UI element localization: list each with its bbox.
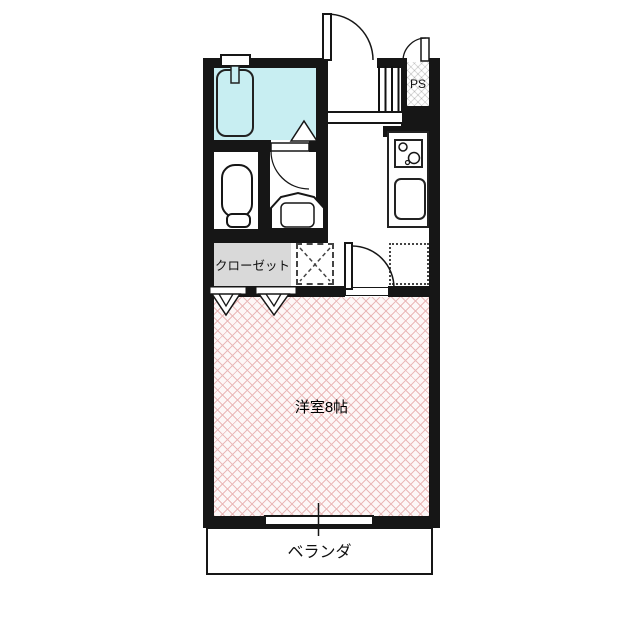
balcony-label: ベランダ bbox=[206, 533, 433, 567]
bathtub-tap-icon bbox=[231, 66, 239, 83]
stove-burners-icon bbox=[399, 143, 420, 165]
washing-machine-x-icon bbox=[300, 248, 330, 281]
washroom-door-icon bbox=[271, 143, 309, 189]
bathroom-door-icon bbox=[291, 121, 317, 141]
closet-folding-doors-icon bbox=[210, 287, 296, 315]
entrance-door-icon bbox=[323, 14, 373, 60]
floor-plan: PS クローゼット 洋室8帖 ベランダ bbox=[0, 0, 640, 640]
ps-door-icon bbox=[403, 38, 429, 61]
room-door-icon bbox=[345, 243, 394, 289]
toilet-icon bbox=[222, 165, 252, 227]
washbasin-icon bbox=[271, 193, 324, 229]
